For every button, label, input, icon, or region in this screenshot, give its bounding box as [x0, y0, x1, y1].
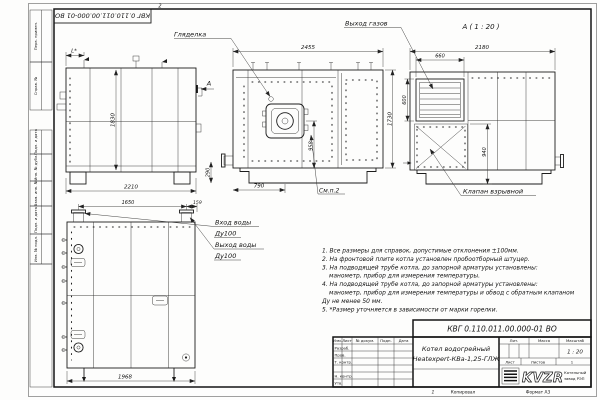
tb-col-data: Дата [399, 338, 409, 343]
label-water-inlet: Вход воды [215, 219, 251, 227]
tb-mass-label: Масса [538, 338, 550, 343]
side-stubs [61, 238, 67, 352]
stamp-vzam-inv: Взам. инв. № [33, 181, 38, 207]
dim-rear-1968: 1968 [118, 375, 132, 381]
view-a-base [417, 170, 551, 184]
burner-plate [263, 104, 309, 138]
label-gliadelka: Гляделка [174, 31, 206, 39]
stamp-perv-primen: Перв. примен. [33, 22, 38, 51]
explosion-valve-panel [415, 124, 468, 170]
note-line: 2. На фронтовой плите котла установлен п… [322, 257, 530, 263]
tb-row-razrab: Разраб. [335, 346, 350, 351]
note-line: 3. На подводящей трубе котла, до запорно… [322, 266, 538, 272]
logo-text: KVZR [522, 371, 564, 386]
tb-row-prov: Пров. [335, 353, 346, 358]
tb-col-list: Лист [342, 338, 352, 343]
logo-caption-1: Котельный [564, 370, 587, 375]
dim-view-a-940: 940 [482, 147, 488, 157]
view-a-title: А ( 1 : 20 ) [461, 23, 499, 31]
tb-lit-label: Лит. [510, 338, 519, 343]
label-explosion-valve: Клапан взрывной [463, 188, 523, 196]
tb-scale-value: 1 : 20 [567, 350, 583, 356]
tb-sheets-value: 1 [571, 360, 574, 365]
side-view: 1830 2210 L* А [57, 49, 214, 195]
stamp-inv-dubl: Инв. № дубл. [33, 155, 38, 181]
label-gas-outlet: Выход газов [345, 20, 388, 28]
notes-block: 1. Все размеры для справок, допустимые о… [321, 249, 575, 314]
tb-row-utv: Утв. [335, 381, 343, 386]
dim-rear-159: 159 [193, 200, 202, 206]
logo-caption-2: завод РЭП [564, 376, 585, 381]
front-view-body [233, 70, 383, 168]
tb-col-izm: Изм. [333, 338, 342, 343]
side-view-foot [174, 172, 190, 184]
title-block: Изм. Лист № докум. Подп. Дата Разраб. Пр… [333, 320, 591, 387]
rear-view: 1650 159 1968 Вход воды Ду100 Выход воды… [61, 200, 264, 384]
section-arrow-label: А [206, 80, 211, 88]
dim-side-width: 2210 [124, 185, 138, 191]
stamp-podp-data-2: Подп. и дата [33, 207, 38, 233]
front-view: 2455 1730 958 790 290 Гляделка См.п.2 [174, 31, 396, 195]
dim-front-width: 2455 [301, 45, 315, 51]
drawing-canvas: КВГ 0.110.011.00.000-01 ВО 2 Перв. приме… [0, 0, 600, 400]
handholes [71, 244, 190, 361]
side-view-body [66, 68, 196, 172]
dim-front-958: 958 [309, 141, 315, 151]
zone-mark-top: 2 [158, 4, 161, 10]
tb-row-tkontr: Т. контр. [334, 360, 353, 365]
dim-front-290: 290 [206, 168, 212, 178]
dim-front-height: 1730 [388, 112, 394, 126]
copied-label: Копировал [451, 390, 476, 396]
dim-louver-width: 660 [435, 54, 445, 60]
tb-row-nkontr: Н. контр. [335, 374, 353, 379]
stamp-podp-data-1: Подп. и дата [33, 129, 38, 155]
label-smp2: См.п.2 [319, 188, 339, 195]
tb-scale-label: Масштаб [566, 338, 585, 343]
lifting-lugs [251, 63, 373, 71]
tb-col-podp: Подп. [380, 338, 392, 343]
gas-outlet-louver [416, 79, 464, 121]
tb-sheets-label: Листов [531, 360, 546, 365]
dim-rear-1650: 1650 [122, 200, 135, 206]
dim-side-l: L* [71, 49, 77, 55]
stamp-sprav-no: Справ. № [33, 77, 38, 96]
format-label: Формат А3 [526, 390, 551, 396]
side-pipe [555, 157, 561, 165]
note-line: манометр, прибор для измерения температу… [329, 274, 480, 280]
tb-col-doc: № докум. [356, 338, 375, 343]
water-outlet-pipe [182, 213, 192, 223]
margin-stamps: Перв. примен. Справ. № Подп. и дата Инв.… [30, 10, 52, 387]
company-logo: KVZR Котельный завод РЭП [502, 368, 587, 386]
top-designation-text: КВГ 0.110.011.00.000-01 ВО [55, 12, 150, 20]
note-line: 1. Все размеры для справок, допустимые о… [322, 249, 519, 255]
note-line: Ду не менее 50 мм. [321, 299, 383, 305]
inspection-hole [269, 97, 274, 102]
water-inlet-pipe [74, 213, 84, 223]
tb-sheet-label: Лист [505, 360, 515, 365]
front-base [240, 168, 376, 183]
note-line: манометр, прибор для измерения температу… [329, 291, 575, 297]
zone-mark-bottom: 1 [432, 390, 435, 396]
side-view-foot [70, 172, 86, 184]
drawing-sheet: КВГ 0.110.011.00.000-01 ВО 2 Перв. приме… [0, 0, 600, 400]
tb-product-line1: Котел водогрейный [422, 345, 490, 353]
dim-front-790: 790 [254, 184, 265, 190]
dim-view-a-width: 2180 [475, 45, 489, 51]
dim-louver-height: 600 [402, 95, 408, 105]
note-line: 4. На подводящей трубе котла, до запорно… [322, 282, 538, 288]
label-water-outlet: Выход воды [215, 241, 256, 249]
tb-product-line2: Heatexpert-КВа-1,25-ГЛЖ [413, 355, 501, 363]
dim-side-height: 1830 [111, 113, 117, 127]
note-line: 5. *Размер уточняется в зависимости от м… [322, 308, 498, 314]
label-water-inlet-dn: Ду100 [214, 230, 236, 238]
label-water-outlet-dn: Ду100 [214, 252, 236, 260]
tb-designation: КВГ 0.110.011.00.000-01 ВО [447, 325, 557, 334]
stamp-inv-podl: Инв. № подл. [33, 236, 38, 262]
bottom-margin: 1 Копировал Формат А3 [432, 390, 551, 396]
